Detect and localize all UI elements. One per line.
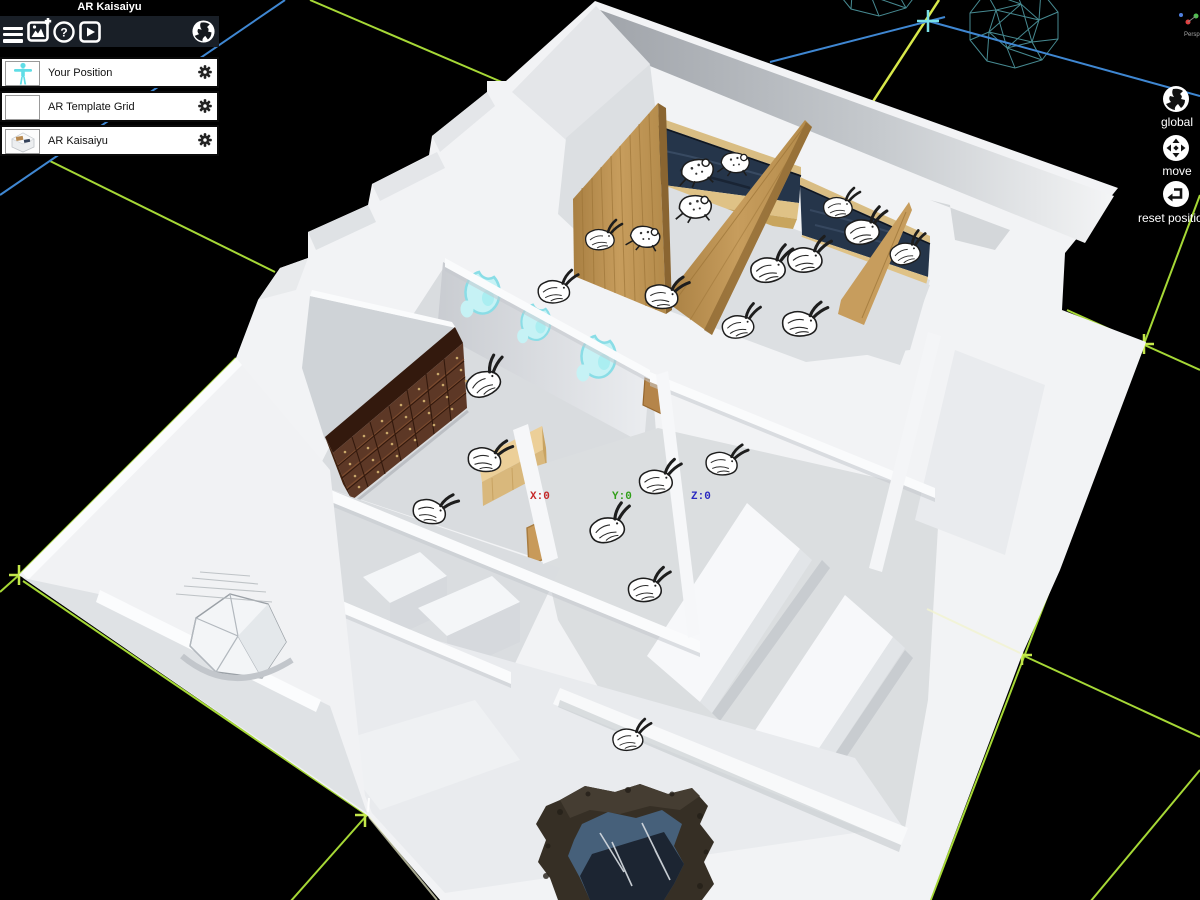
svg-text:Y:0: Y:0 [612, 491, 632, 503]
svg-text:X:0: X:0 [530, 491, 550, 503]
svg-text:Z:0: Z:0 [691, 491, 711, 503]
svg-text:Persp: Persp [1184, 32, 1200, 38]
svg-text:?: ? [60, 26, 67, 40]
